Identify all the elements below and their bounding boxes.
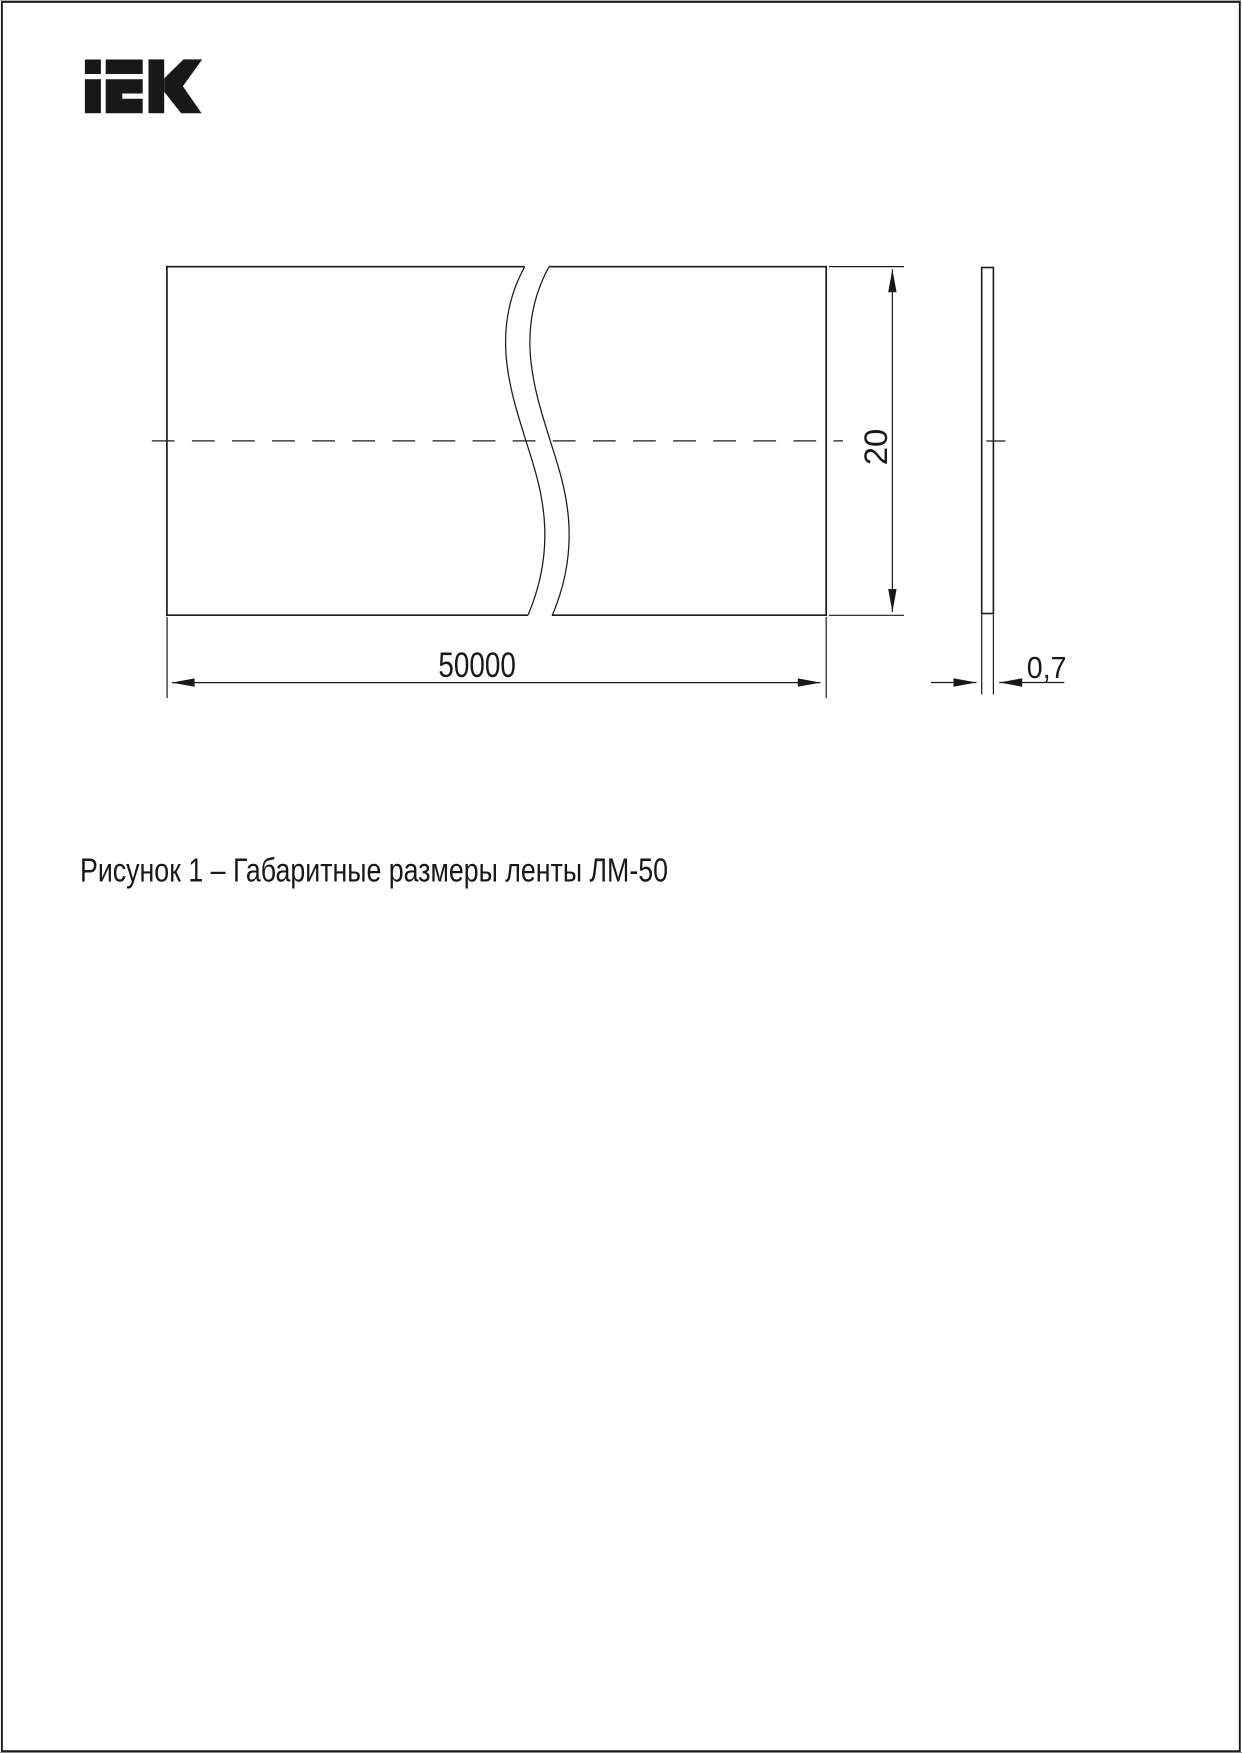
- svg-text:0,7: 0,7: [1027, 651, 1067, 685]
- svg-text:50000: 50000: [438, 646, 516, 685]
- svg-text:Рисунок 1 – Габаритные размеры: Рисунок 1 – Габаритные размеры ленты ЛМ-…: [80, 852, 668, 889]
- svg-text:20: 20: [857, 429, 894, 466]
